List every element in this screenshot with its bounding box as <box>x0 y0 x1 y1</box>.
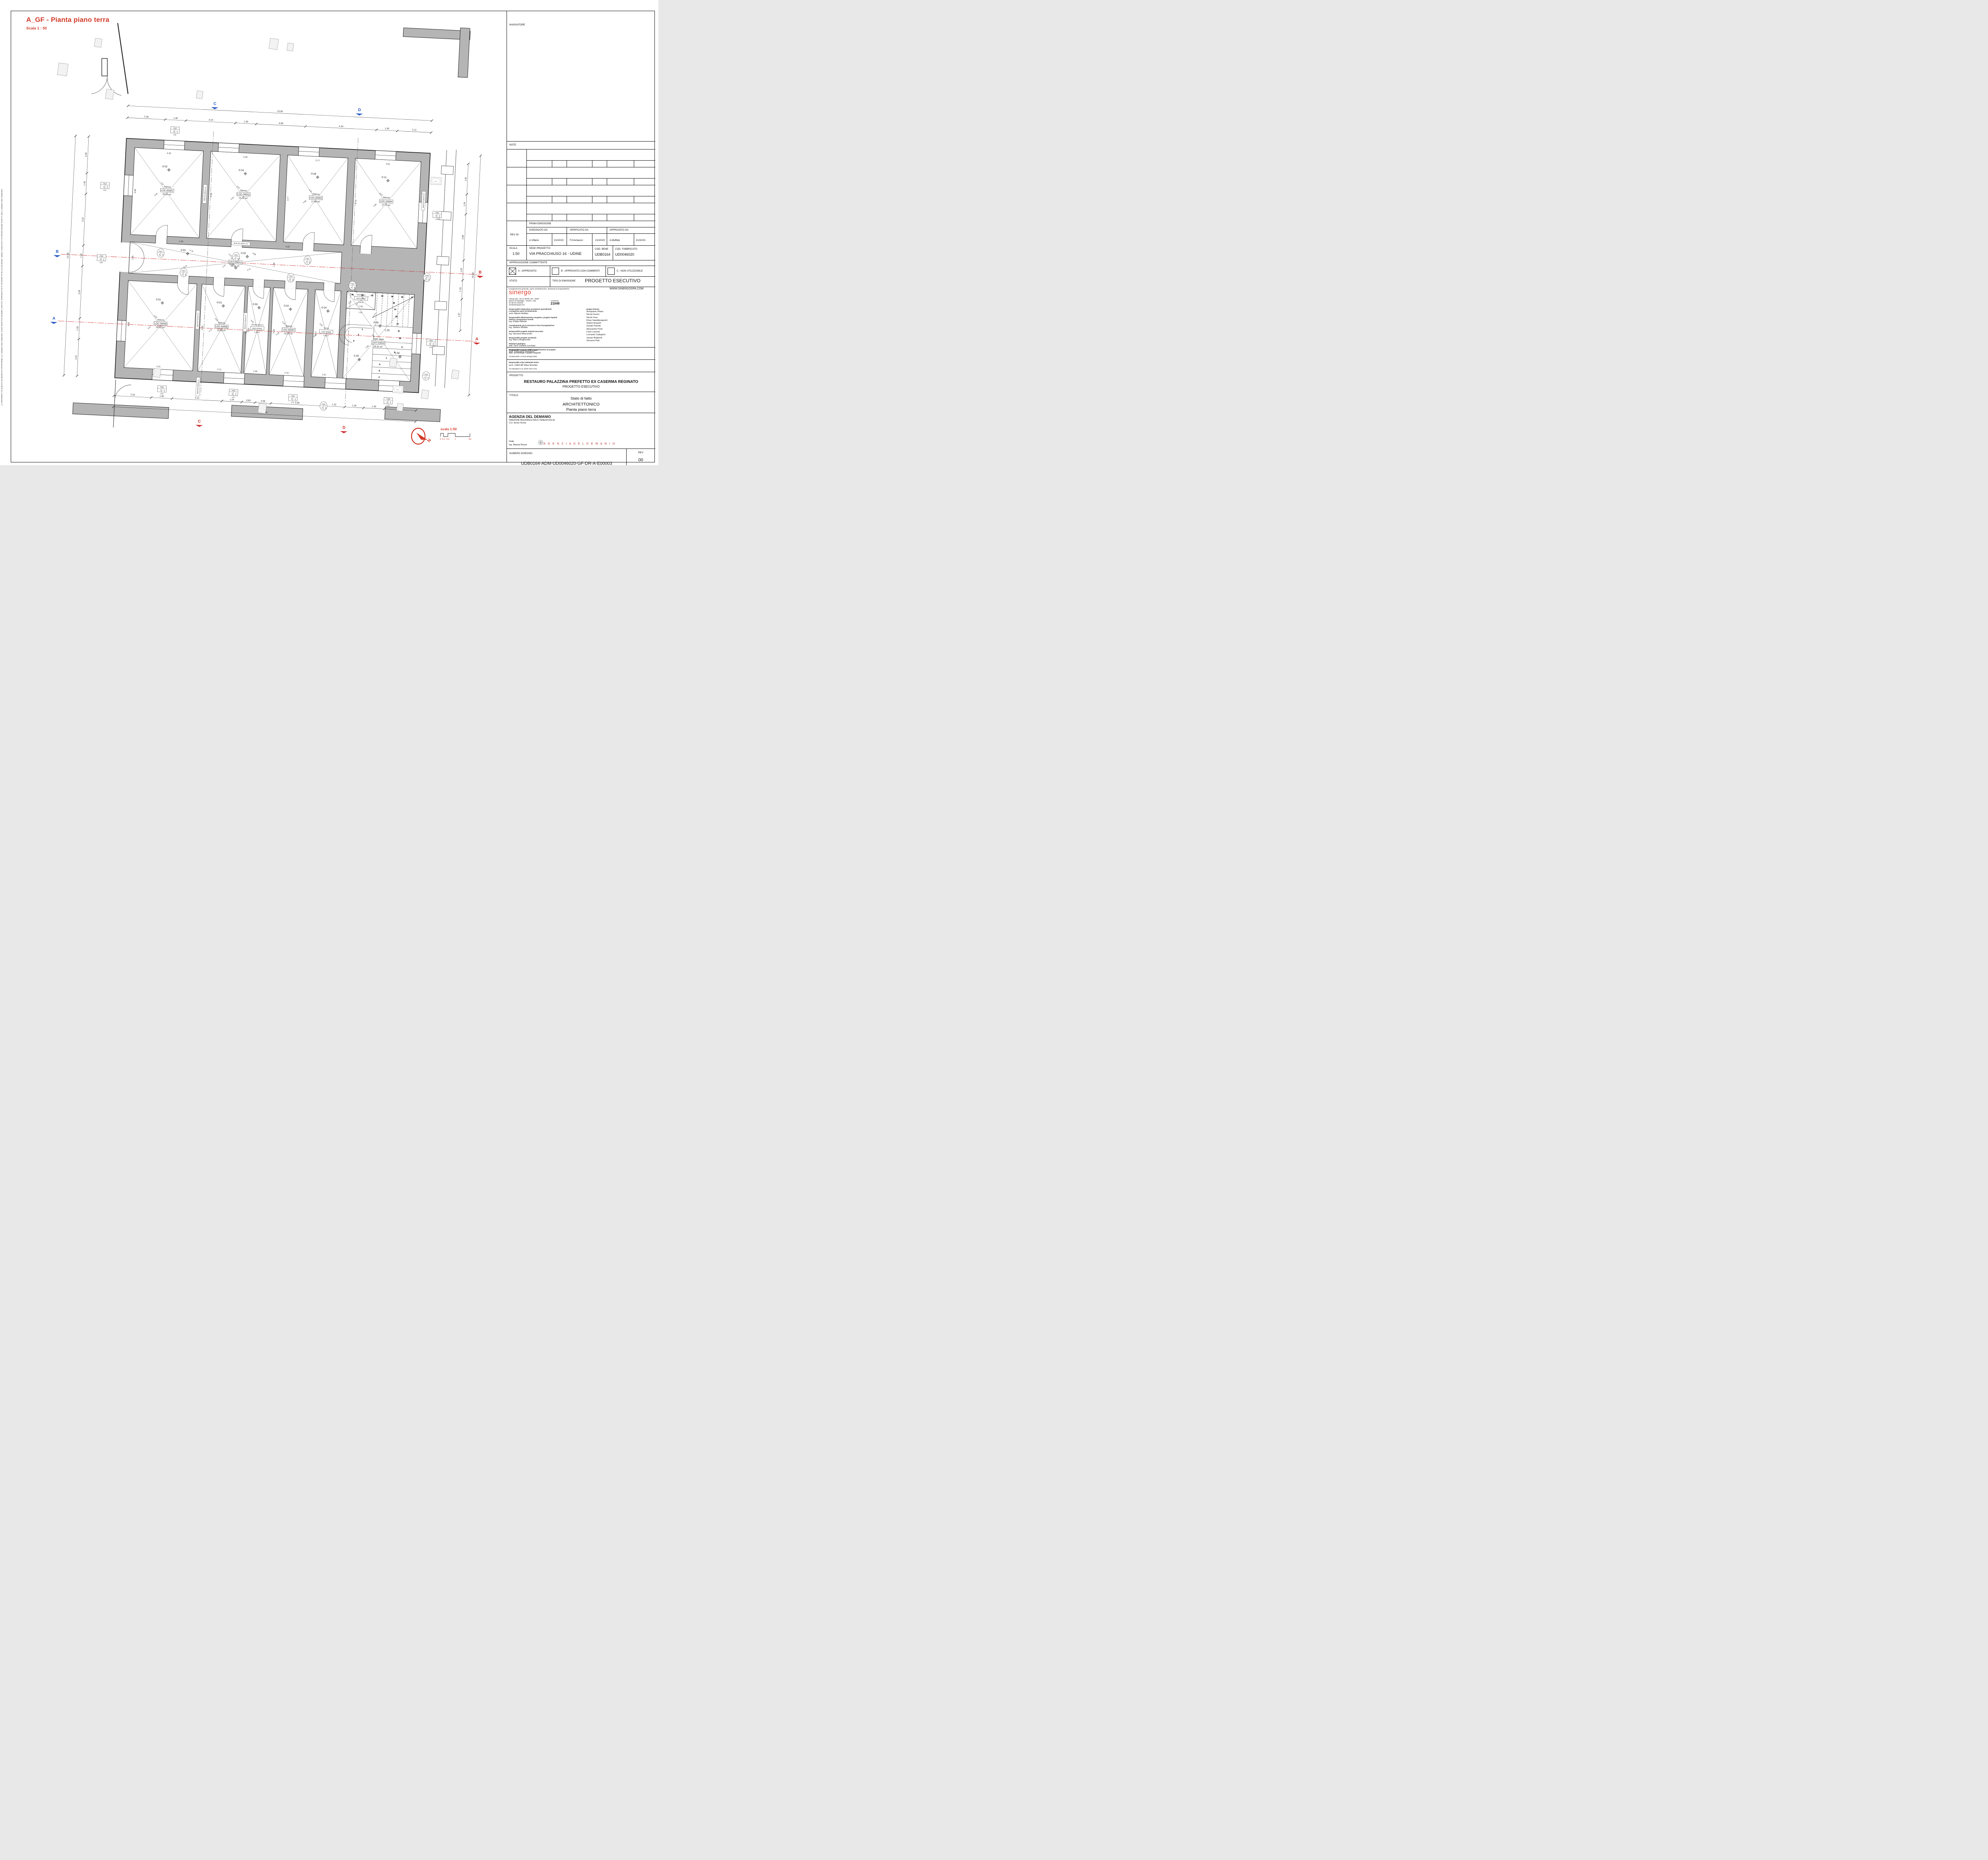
text-element: P001 <box>182 270 185 272</box>
text-element: 1.30 <box>76 326 79 331</box>
team-member: Leonardo Callegarin <box>586 334 646 336</box>
text-element: 210 <box>439 215 440 217</box>
text-element: 235 <box>309 261 311 264</box>
text-element: 4.77 <box>287 196 290 201</box>
text-element: B <box>479 270 482 275</box>
team-member: Giovanni Palù <box>586 340 646 342</box>
text-element: 4.86 <box>210 193 213 197</box>
text-element: 1.29 <box>384 329 390 332</box>
agenzia-uo: U.O. Servizi Tecnici <box>509 422 526 424</box>
text-element: 4.15 m² <box>254 331 260 334</box>
text-element: 1 <box>455 438 456 441</box>
text-element: N.C. <box>396 388 400 390</box>
disegnato-data: 21/10/23 <box>554 239 563 242</box>
text-element: -0.02 <box>240 252 246 255</box>
text-element: 1.30 <box>244 120 248 123</box>
text-element: 235 <box>185 274 186 276</box>
text-element: 130 <box>99 258 101 260</box>
text-element: -0.02 <box>283 305 289 308</box>
text-element: 20.81 m² <box>163 193 171 196</box>
appr-a: A - APPROVATO <box>518 270 536 272</box>
section-flag <box>476 276 483 278</box>
text-element: 1.32 <box>332 404 336 406</box>
drawing-sheet: LA PROPRIETÀ DI QUESTO ELABORATO APPARTI… <box>0 0 658 465</box>
dim-total: 19.00 <box>127 103 433 122</box>
text-element: F008 <box>386 398 390 400</box>
manhole-symbol <box>258 403 267 414</box>
verificato-da: VERIFICATO DA <box>570 229 588 231</box>
prima-emissione: PRIMA EMISSIONE <box>529 222 551 225</box>
titolo-line1: Stato di fatto <box>507 396 655 401</box>
text-element: Stanza <box>157 319 165 322</box>
rect-element <box>303 243 314 251</box>
text-element: 1.24 <box>230 398 234 401</box>
text-element: 130 <box>103 186 105 188</box>
text-element: P008 <box>322 404 325 405</box>
text-element: 135 <box>322 407 323 409</box>
agenzia-title: AGENZIA DEL DEMANIO <box>509 415 551 419</box>
team-member: Shahin Amayeh <box>586 322 646 325</box>
text-element: 130 <box>173 130 175 133</box>
text-element: 1.36 <box>359 311 363 313</box>
section-flag <box>340 431 347 433</box>
cod-bene-value: UDB0164 <box>595 252 610 256</box>
dim-total: 14.98 <box>61 134 77 377</box>
numero-value: UDB0164-ADM-UD0046020-GF-DR-A-E00003 <box>507 461 626 465</box>
text-element: 3.81 <box>386 163 390 166</box>
rev-col-value: 00 <box>626 458 655 462</box>
text-element: 0.99 <box>261 400 265 403</box>
text-element: 0.95 <box>103 190 107 191</box>
text-element: 4.44 <box>339 125 343 128</box>
text-element: 107 <box>424 377 426 379</box>
rect-element <box>324 283 335 291</box>
text-element: 1.30 <box>83 181 86 186</box>
text-element: 130 <box>160 389 162 392</box>
text-element: 235 <box>162 254 163 256</box>
text-element: 110 <box>289 279 290 281</box>
text-element: 1.30 <box>159 395 164 398</box>
cam-addr: Via Stampatori n.21 10100 Torino (TO) <box>509 368 537 370</box>
text-element: 23 <box>351 293 354 295</box>
text-element: -0.01 <box>216 301 222 305</box>
team-member: Jacopo Brighenti <box>586 337 646 340</box>
cam-name: arch. LEED AP Elisa Sirombo <box>509 364 538 367</box>
text-element: 4.80 <box>201 326 204 330</box>
text-element: F002 <box>435 212 439 214</box>
rup-label: r.u.p. <box>509 440 514 443</box>
text-element: 1.09 <box>394 352 400 355</box>
rect-element <box>213 277 225 285</box>
numero-label: NUMERO DISEGNO <box>509 452 532 455</box>
text-element: 110 <box>234 258 236 260</box>
text-element: 220 <box>433 343 434 345</box>
text-element: B <box>56 250 59 254</box>
text-element: 175 <box>427 377 429 379</box>
website: WWW.SINERGOSPA.COM <box>610 287 643 290</box>
text-element: 210 <box>103 258 105 261</box>
text-element: 0.92 <box>232 396 235 398</box>
team-member: Alessandro Prete <box>586 328 646 331</box>
appr-b: B - APPROVATO CON COMMENTI <box>561 270 600 272</box>
role-item: Responsabile progetto impianti meccanici… <box>509 330 582 335</box>
progetto-line1: RESTAURO PALAZZINA PREFETTO EX CASERMA R… <box>507 380 655 384</box>
text-element: 310 <box>325 407 326 409</box>
team-member: Annapaola Villano <box>586 311 646 313</box>
text-element: -0.11 <box>381 176 387 179</box>
text-element: 0.2 <box>442 438 445 441</box>
text-element: 125 <box>429 343 431 345</box>
text-element: 13.63 m² <box>217 329 225 332</box>
text-element: 20 <box>381 295 384 297</box>
text-element: P001 <box>289 275 293 277</box>
titolo-line2: ARCHITETTONICO <box>507 402 655 407</box>
text-element: F001 <box>160 386 164 388</box>
text-element: 1.36 <box>359 305 363 308</box>
text-element: 3.30 <box>295 402 299 405</box>
disegnato-da: DISEGNATO DA <box>529 229 547 231</box>
text-element: 21.01 m² <box>239 197 248 200</box>
text-element: 130 <box>435 215 437 217</box>
text-element: -0.04 <box>238 169 244 172</box>
text-element: 4.30 <box>179 241 183 243</box>
text-element: 1.24 <box>460 268 463 272</box>
note-label: NOTE <box>509 144 516 146</box>
manhole-symbol <box>421 390 429 399</box>
line-element <box>460 164 468 331</box>
text-element: 0.93 <box>429 346 432 348</box>
text-element: 14 <box>394 308 396 310</box>
section-flag <box>50 322 57 324</box>
sinergo-logo: sinergo <box>509 289 531 296</box>
text-element: 11 <box>398 330 400 332</box>
scala-label: SCALA <box>509 247 517 250</box>
text-element: Stanza <box>240 190 248 192</box>
disegnato-nome: A.Villano <box>529 239 539 242</box>
text-element: 10.24 m² <box>284 332 293 335</box>
text-element: P001 <box>234 254 238 256</box>
text-element: P010 <box>424 373 428 375</box>
text-element: 2.29 <box>85 153 88 157</box>
text-element: A <box>475 337 478 341</box>
text-element: 0.83 <box>246 400 250 402</box>
text-element: 2.89 <box>462 235 465 239</box>
text-element: 0.5 <box>447 438 449 441</box>
team-member: Elnaz Saadatiyeganeh <box>586 319 646 322</box>
text-element: F001 <box>103 183 107 184</box>
text-element: 4.68 <box>273 329 276 334</box>
text-element: 4.88 <box>128 322 130 326</box>
text-element: 0.00 <box>181 249 186 252</box>
sede-value: VIA PRACCHIUSO 16 - UDINE <box>529 252 582 256</box>
manhole-symbol <box>196 91 203 99</box>
text-element: 1.96 <box>273 262 276 267</box>
rup-name: ing. Manuel Rosso <box>509 444 527 446</box>
text-element: 1.19 <box>459 287 462 292</box>
text-element: 0.93 <box>386 405 390 406</box>
text-element: P005 <box>351 283 354 285</box>
text-element: Stanza <box>285 325 293 328</box>
text-element: F001 <box>173 127 177 129</box>
text-element: 17.72 m² <box>382 204 390 207</box>
text-element: 15 <box>393 302 395 304</box>
text-element: 20.91 m² <box>156 326 165 329</box>
text-element: 14.98 <box>67 252 70 258</box>
title-block: NAVIGATORE NOTE REV <box>507 11 655 462</box>
text-element: 210 <box>163 389 165 392</box>
verificato-data: 21/10/23 <box>595 239 605 242</box>
graphic-scale: scala 1:50 00.20.512m <box>440 427 472 441</box>
text-element: 4.28 <box>285 246 290 249</box>
text-element: 235 <box>237 258 239 260</box>
text-element: 16.41 m² <box>374 346 382 348</box>
text-element: 310 <box>428 278 430 281</box>
text-element: -0.08 <box>310 173 316 176</box>
gruppo-label: gruppo di lavoro <box>586 308 599 310</box>
text-element: 18 <box>401 296 404 298</box>
text-element: 3.03 <box>248 328 250 332</box>
text-element: P001 <box>159 250 163 252</box>
verificato-nome: F.Cremasco <box>570 239 583 242</box>
text-element: Stanza <box>383 196 390 199</box>
agenzia-emblem <box>538 440 544 445</box>
text-element: 12 <box>396 323 399 325</box>
text-element: -0.05 <box>373 321 379 324</box>
approvato-nome: A.Muffato <box>610 239 620 242</box>
text-element: 4.67 <box>315 331 317 336</box>
role-item: Responsabile efficientamento energetico,… <box>509 316 582 323</box>
text-element: 215 <box>294 398 296 401</box>
commessa-value: 21049 <box>551 302 559 305</box>
progetto-line2: PROGETTO ESECUTIVO <box>507 385 655 388</box>
manhole-symbol <box>105 89 114 99</box>
text-element: A <box>52 316 56 320</box>
text-element: 1.18 <box>352 405 356 408</box>
text-element: -0.02 <box>161 165 167 168</box>
text-element: 2.12 <box>412 129 416 132</box>
text-element: 2.71 <box>217 369 221 371</box>
text-element: 235 <box>292 279 293 281</box>
text-element: F001 <box>100 255 103 257</box>
text-element: 19.28 <box>472 272 475 278</box>
manhole-symbol <box>57 63 68 76</box>
text-element: 2.31 <box>75 355 78 359</box>
text-element: D <box>358 108 361 112</box>
stato-label: STATO <box>509 280 517 282</box>
text-element: 210 <box>177 130 178 133</box>
rev00: REV 00 <box>510 233 518 236</box>
text-element: C <box>198 419 201 424</box>
text-element: 2.34 <box>130 394 135 396</box>
text-element: 3.22 <box>82 217 85 222</box>
text-element: 1.61 <box>322 374 326 377</box>
approvato-da: APPROVATO DA <box>610 229 629 231</box>
text-element: 3.12 <box>195 397 199 400</box>
manhole-symbol <box>153 368 161 377</box>
text-element: Stanza <box>313 193 320 196</box>
agenzia-direzione: DIREZIONE REGIONALE FRIULI VENEZIA GIULI… <box>509 419 555 421</box>
text-element: 3.77 <box>315 159 320 162</box>
scala-value: 1:50 <box>513 252 520 256</box>
text-element: 110 <box>182 273 183 276</box>
line-element <box>469 156 480 395</box>
svg-text:scala 1:50: scala 1:50 <box>441 427 457 431</box>
section-flag <box>473 342 480 345</box>
cod-fabbricato-label: COD. FABBRICATO <box>615 248 637 250</box>
line-element <box>77 136 89 376</box>
text-element: 210 <box>107 186 108 188</box>
text-element: 1.24 <box>464 202 466 206</box>
navigatore-label: NAVIGATORE <box>509 23 525 26</box>
team-member: Davide Potente <box>586 325 646 328</box>
text-element: 2.16 <box>284 372 289 375</box>
archeo-name: dott. archeologo Claudio Negrelli <box>509 352 541 354</box>
text-element: Stanza <box>218 322 226 324</box>
manhole-symbol <box>269 38 278 50</box>
manhole-symbol <box>389 358 397 367</box>
rect-element <box>155 235 167 244</box>
role-item: Coordinamento per la sicurezza in fase d… <box>509 324 582 329</box>
dim-total: 19.28 <box>466 154 482 396</box>
path-element <box>441 433 470 437</box>
text-element: Stanza <box>164 186 171 188</box>
text-element: 4.31 <box>156 365 161 368</box>
archeo-title: Responsabile relazione archeologica <box>509 349 538 351</box>
text-element: 1.30 <box>80 253 83 258</box>
text-element: 19.00 <box>277 110 283 113</box>
text-element: 0.01 <box>156 298 161 301</box>
team-member: Nicola Favaro <box>586 313 646 316</box>
role-item: Responsabile integrazione prestazioni sp… <box>509 308 582 315</box>
text-element: 1.91 <box>465 177 468 181</box>
text-element: 2.08 m² <box>358 301 364 303</box>
manhole-symbol <box>396 403 403 412</box>
dim-chain: 1.911.242.891.241.191.97 <box>457 163 470 332</box>
text-element: F003 <box>232 390 235 392</box>
text-element: 0.95 <box>173 134 177 136</box>
text-element: 1.30 <box>385 128 389 130</box>
section-flag <box>211 107 218 109</box>
text-element: 2m <box>468 438 471 441</box>
team-member: Nicole Fava <box>586 316 646 319</box>
checkbox-non-utilizzabile <box>608 268 615 275</box>
text-element: 0.91 <box>291 402 294 404</box>
text-element: 0 <box>440 438 441 441</box>
text-element: 2.36 <box>144 116 149 118</box>
text-element: 0.00 <box>229 263 235 266</box>
text-element: N.C. <box>434 180 438 182</box>
manhole-symbol <box>94 38 102 47</box>
text-element: 1.30 <box>372 406 376 408</box>
text-element: 0.95 <box>160 393 163 394</box>
text-element: 80 <box>351 287 352 288</box>
rev-col-label: REV <box>626 451 655 454</box>
text-element: 130 <box>231 393 233 395</box>
line-element <box>64 136 76 375</box>
text-element: 210 <box>235 393 237 395</box>
checkbox-approvato <box>509 268 516 275</box>
text-element: 110 <box>306 261 307 264</box>
appr-c: C - NON UTILIZZABILE <box>617 270 643 272</box>
approvato-data: 21/10/23 <box>636 239 645 242</box>
text-element: 3.10 <box>209 119 213 122</box>
text-element: C <box>214 102 217 106</box>
manhole-symbol <box>287 43 293 51</box>
checkbox-approvato-commenti <box>552 268 559 275</box>
text-element: 235 <box>354 286 355 289</box>
portico <box>431 149 456 388</box>
text-element: 3.08 <box>279 122 283 125</box>
role-item: Relazione geologica dott. Geol. Daniele … <box>509 343 582 348</box>
cod-fabbricato-value: UD0046020 <box>615 252 634 256</box>
text-element: 3.26 <box>78 290 81 294</box>
manhole-symbol <box>451 370 459 379</box>
text-element: 10 <box>399 337 402 339</box>
section-flag <box>356 113 363 116</box>
text-element: 1.30 <box>173 117 178 120</box>
cam-title: Responsabile criteri ambientali minimi <box>509 361 539 363</box>
team-member: Carlo Laurenti <box>586 331 646 334</box>
dim-chain: 2.291.303.221.303.261.302.31 <box>74 135 90 377</box>
roles-list: Responsabile integrazione prestazioni sp… <box>509 308 582 355</box>
text-element: F005 <box>429 340 433 342</box>
text-element: 21 <box>371 295 374 297</box>
section-flag <box>196 425 203 427</box>
text-element: 17.84 m² <box>311 200 320 203</box>
text-element: 110 <box>159 254 160 256</box>
tipo-emissione-label: TIPO DI EMISSIONE <box>552 280 575 282</box>
text-element: D <box>342 425 346 430</box>
text-element: 4.36 <box>243 156 248 159</box>
archeo-addr: Via Mancinelli n.4 40141 Bologna (BO) <box>509 355 537 357</box>
text-element: 4.70 <box>355 200 357 204</box>
titolo-line3: Pianta piano terra <box>507 408 655 412</box>
section-flag <box>53 255 60 257</box>
agenzia-brand: A G E N Z I A D E L D E M A N I O <box>544 442 615 445</box>
text-element: F010 <box>291 395 295 397</box>
role-item: Responsabile progetto strutturale ing. M… <box>509 337 582 342</box>
text-element: 1.96 <box>132 256 134 260</box>
text-element: 4.29 <box>167 152 171 155</box>
address-4: info@sinergospa.com <box>509 304 525 306</box>
text-element: 220 <box>390 401 391 404</box>
text-element: P001 <box>306 258 309 259</box>
cod-bene-label: COD. BENE <box>595 248 608 250</box>
rect-element <box>360 245 372 254</box>
text-element: 130 <box>386 401 388 404</box>
rect-element <box>253 279 264 287</box>
text-element: 0.45 <box>354 355 359 358</box>
text-element: P009 <box>425 275 429 276</box>
text-element: 7.43 m² <box>323 334 329 337</box>
progetto-label: PROGETTO <box>509 374 523 377</box>
text-element: 1.97 <box>458 313 461 317</box>
north-arrow: N <box>412 428 432 444</box>
text-element: 0.96 <box>435 219 439 220</box>
approvazione-label: APPROVAZIONE COMMITTENTE <box>509 261 547 264</box>
text-element: 1.38 <box>253 370 257 373</box>
gruppo-list: Annapaola VillanoNicola FavaroNicole Fav… <box>586 311 646 342</box>
svg-text:N: N <box>427 438 432 443</box>
progetto-esecutivo: PROGETTO ESECUTIVO <box>585 278 641 283</box>
text-element: 105 <box>291 398 293 400</box>
text-element: -0.04 <box>321 306 327 309</box>
text-element: 0.95 <box>100 262 103 264</box>
text-element: 13 <box>395 316 398 318</box>
text-element: Stanza <box>324 327 329 329</box>
text-element: 130 <box>425 278 427 280</box>
text-element: 0.00 <box>252 303 258 306</box>
